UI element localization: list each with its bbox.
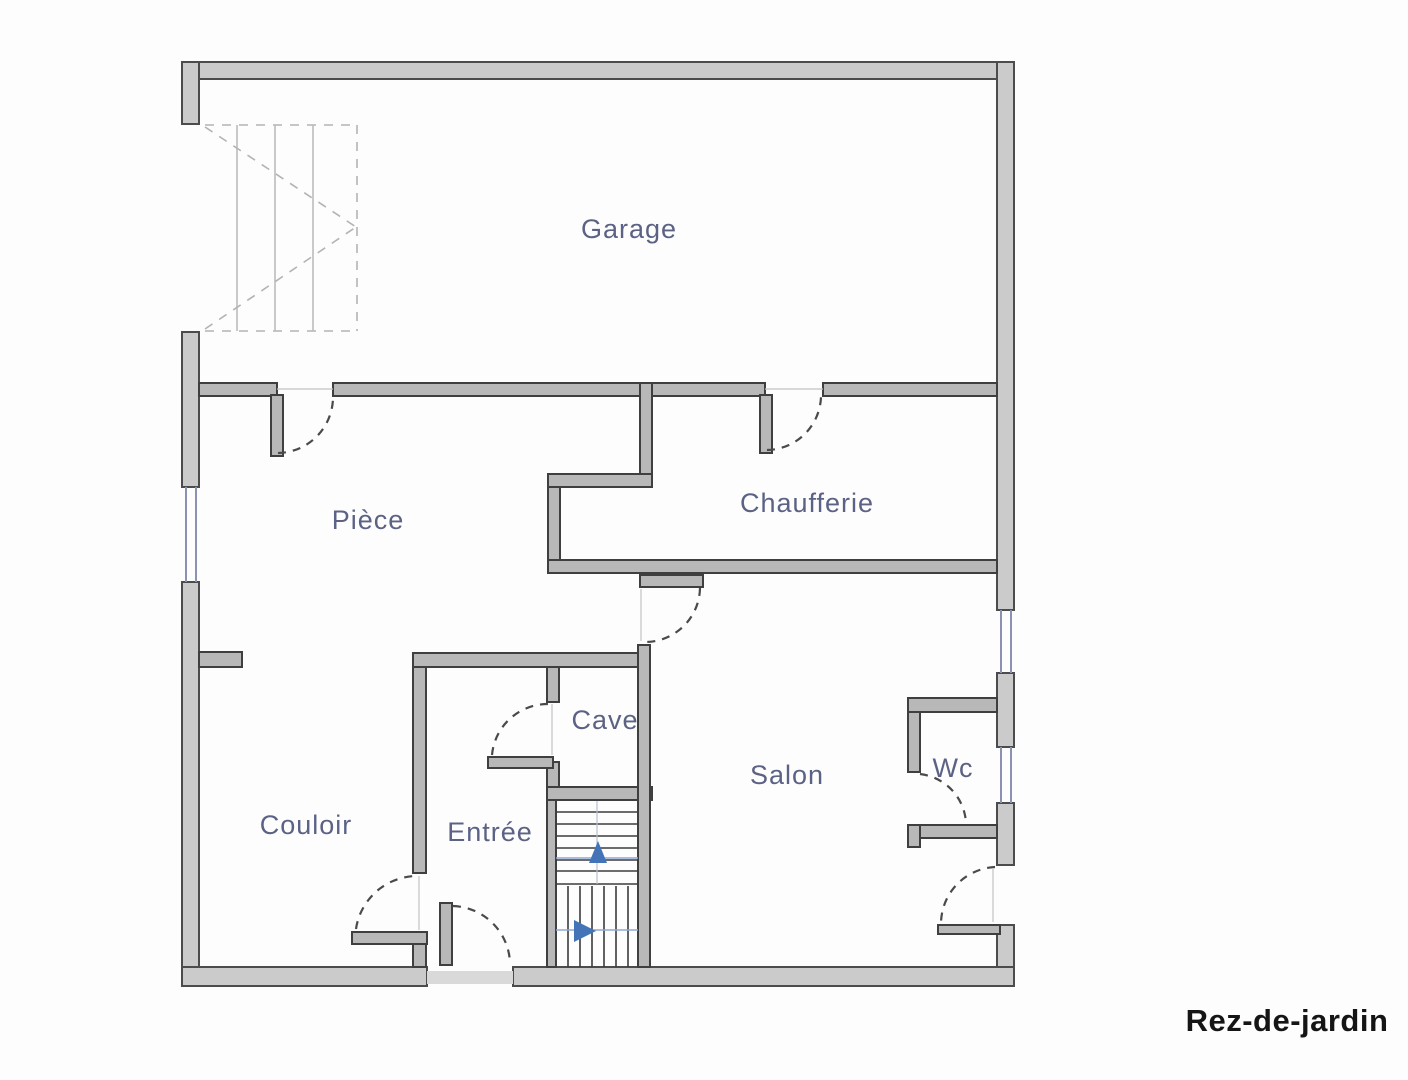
outer-wall-top [182,62,1014,79]
wc-left-wall [908,712,920,772]
cave-left-wall-upper [547,667,559,702]
room-label-cave: Cave [571,705,638,735]
garage-staircase-dashed [205,125,357,331]
garage-bottom-wall-left [199,383,277,396]
room-label-chaufferie: Chaufferie [740,488,874,518]
wc-bottom-wall [908,825,997,838]
main-staircase [556,801,638,967]
garage-bottom-wall-center [333,383,765,396]
entrance-door-leaf [440,903,452,965]
cave-bottom-wall [547,787,652,800]
garage-stair-cut-line-lower [205,227,356,329]
room-label-entree: Entrée [447,817,533,847]
couloir-door-arc [356,876,417,929]
outer-wall-right-upper [997,62,1014,610]
piece-door-arc [278,397,333,453]
salon-door-arc [646,588,700,642]
chaufferie-door-arc [767,397,821,450]
entrance-threshold [427,971,513,984]
couloir-entree-divider [413,667,426,873]
room-label-couloir: Couloir [260,810,353,840]
windows [186,487,1011,803]
stairs-up-arrow-icon [589,841,607,863]
wc-bottom-wall-return [908,825,920,847]
couloir-entree-divider-lower [413,944,426,967]
cave-door-arc [492,704,548,755]
floor-plan-drawing: Garage Pièce Chaufferie Cave Salon Wc Co… [0,0,1408,1080]
chaufferie-divider-wall [640,383,652,487]
couloir-door-leaf [352,932,427,944]
room-label-piece: Pièce [332,505,405,535]
floor-plan-page: Garage Pièce Chaufferie Cave Salon Wc Co… [0,0,1408,1080]
outer-wall-bottom-right [513,967,1014,986]
outer-wall-right-mid2 [997,803,1014,865]
salon-door-leaf [640,575,703,587]
room-label-garage: Garage [581,214,677,244]
outer-wall-bottom-left [182,967,427,986]
salon-exterior-door-arc [941,867,995,923]
staircase-left-wall [547,800,556,967]
chaufferie-jog-wall [548,474,652,487]
outer-wall-right-mid1 [997,673,1014,747]
cave-door-leaf [488,757,553,768]
outer-wall-left-upper [182,62,199,124]
room-label-wc: Wc [933,753,974,783]
chaufferie-door-leaf [760,395,772,453]
room-label-salon: Salon [750,760,824,790]
piece-door-leaf [271,395,283,456]
entree-top-wall [413,653,650,667]
staircase-right-wall [638,645,650,967]
room-labels: Garage Pièce Chaufferie Cave Salon Wc Co… [260,214,974,847]
salon-exterior-door-leaf [938,925,1000,934]
couloir-top-wall-stub [199,652,242,667]
garage-stair-cut-line-upper [205,127,356,227]
wc-top-wall [908,698,997,712]
outer-wall-left-middle [182,332,199,487]
garage-bottom-wall-right [823,383,997,396]
chaufferie-bottom-wall [548,560,997,573]
outer-wall-left-lower [182,582,199,986]
plan-title: Rez-de-jardin [1186,1003,1389,1038]
interior-walls [199,383,997,967]
entrance-door-arc [453,906,510,963]
